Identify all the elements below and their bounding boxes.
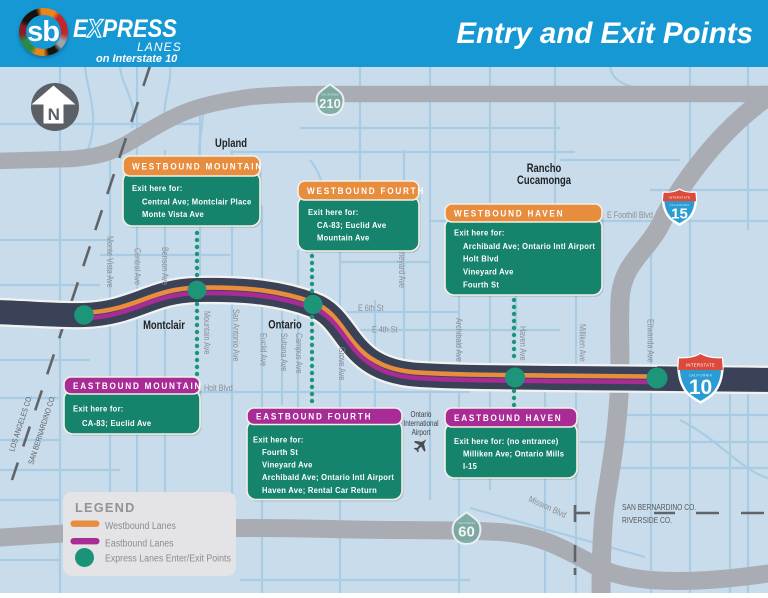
svg-text:E 6th St: E 6th St bbox=[358, 303, 384, 313]
svg-text:CA-83; Euclid Ave: CA-83; Euclid Ave bbox=[82, 419, 152, 429]
svg-text:SAN BERNARDINO CO.: SAN BERNARDINO CO. bbox=[622, 502, 696, 512]
svg-text:Upland: Upland bbox=[215, 137, 247, 150]
svg-text:Euclid Ave: Euclid Ave bbox=[258, 333, 268, 367]
svg-text:Ontario: Ontario bbox=[268, 319, 301, 332]
svg-text:Central Ave: Central Ave bbox=[132, 248, 142, 285]
svg-text:Montclair: Montclair bbox=[143, 319, 185, 332]
svg-text:Monte Vista Ave: Monte Vista Ave bbox=[142, 210, 204, 220]
svg-text:Haven Ave: Haven Ave bbox=[518, 326, 528, 361]
svg-text:Mountain Ave: Mountain Ave bbox=[202, 311, 212, 355]
svg-text:Sultana Ave: Sultana Ave bbox=[279, 333, 289, 372]
svg-text:CA-83; Euclid Ave: CA-83; Euclid Ave bbox=[317, 221, 387, 231]
svg-text:N: N bbox=[48, 105, 60, 124]
svg-text:Archibald Ave; Ontario Intl Ai: Archibald Ave; Ontario Intl Airport bbox=[262, 473, 394, 483]
svg-text:Airport: Airport bbox=[412, 427, 431, 437]
svg-text:Exit here for:: Exit here for: bbox=[454, 228, 505, 238]
svg-text:Westbound Lanes: Westbound Lanes bbox=[105, 520, 176, 532]
svg-text:Grove Ave: Grove Ave bbox=[337, 347, 347, 381]
svg-text:WESTBOUND FOURTH: WESTBOUND FOURTH bbox=[307, 185, 425, 196]
svg-text:Holt Blvd: Holt Blvd bbox=[463, 254, 499, 264]
svg-text:Exit here for:: Exit here for: bbox=[308, 208, 359, 218]
svg-text:EASTBOUND FOURTH: EASTBOUND FOURTH bbox=[256, 411, 372, 422]
svg-text:San Antonio Ave: San Antonio Ave bbox=[231, 309, 241, 362]
svg-text:E Foothill Blvd: E Foothill Blvd bbox=[607, 210, 653, 220]
svg-text:Mountain Ave: Mountain Ave bbox=[317, 233, 370, 243]
svg-text:WESTBOUND MOUNTAIN: WESTBOUND MOUNTAIN bbox=[132, 161, 263, 172]
svg-text:15: 15 bbox=[671, 206, 688, 223]
svg-text:Cucamonga: Cucamonga bbox=[517, 174, 571, 187]
svg-text:Exit here for:: Exit here for: bbox=[253, 435, 304, 445]
svg-text:Campus Ave: Campus Ave bbox=[294, 333, 304, 374]
svg-text:Haven Ave; Rental Car Return: Haven Ave; Rental Car Return bbox=[262, 486, 377, 496]
svg-text:Exit here for: (no entrance): Exit here for: (no entrance) bbox=[454, 437, 559, 447]
svg-text:INTERSTATE: INTERSTATE bbox=[669, 196, 691, 200]
svg-text:RIVERSIDE CO.: RIVERSIDE CO. bbox=[622, 515, 672, 525]
svg-text:Monte Vista Ave: Monte Vista Ave bbox=[105, 236, 115, 288]
svg-text:LEGEND: LEGEND bbox=[75, 500, 136, 515]
svg-text:Eastbound Lanes: Eastbound Lanes bbox=[105, 538, 174, 550]
svg-text:Vineyard Ave: Vineyard Ave bbox=[463, 267, 514, 277]
svg-text:10: 10 bbox=[689, 376, 712, 399]
svg-text:Exit here for:: Exit here for: bbox=[132, 184, 183, 194]
svg-text:EASTBOUND HAVEN: EASTBOUND HAVEN bbox=[454, 412, 562, 423]
svg-text:60: 60 bbox=[458, 524, 475, 541]
svg-text:EASTBOUND MOUNTAIN: EASTBOUND MOUNTAIN bbox=[73, 380, 202, 391]
svg-text:Milliken Ave: Milliken Ave bbox=[577, 324, 587, 362]
svg-text:Holt Blvd: Holt Blvd bbox=[204, 383, 233, 393]
svg-text:WESTBOUND HAVEN: WESTBOUND HAVEN bbox=[454, 208, 564, 219]
svg-text:Express Lanes Enter/Exit Point: Express Lanes Enter/Exit Points bbox=[105, 553, 231, 565]
svg-text:Exit here for:: Exit here for: bbox=[73, 404, 124, 414]
svg-text:I-15: I-15 bbox=[463, 462, 477, 472]
svg-text:Etiwanda Ave: Etiwanda Ave bbox=[645, 319, 655, 363]
svg-text:Fourth St: Fourth St bbox=[463, 280, 499, 290]
svg-text:Milliken Ave; Ontario Mills: Milliken Ave; Ontario Mills bbox=[463, 449, 564, 459]
svg-text:Archibald Ave; Ontario Intl Ai: Archibald Ave; Ontario Intl Airport bbox=[463, 242, 595, 252]
svg-text:Vineyard Ave: Vineyard Ave bbox=[262, 460, 313, 470]
svg-text:INTERSTATE: INTERSTATE bbox=[686, 362, 715, 367]
svg-text:Benson Ave: Benson Ave bbox=[160, 247, 170, 286]
svg-text:Fourth St: Fourth St bbox=[262, 448, 298, 458]
svg-text:210: 210 bbox=[319, 96, 341, 111]
svg-text:E 4th St: E 4th St bbox=[372, 325, 398, 335]
svg-text:Central Ave; Montclair Place: Central Ave; Montclair Place bbox=[142, 197, 252, 207]
svg-text:Archibald Ave: Archibald Ave bbox=[454, 318, 464, 362]
